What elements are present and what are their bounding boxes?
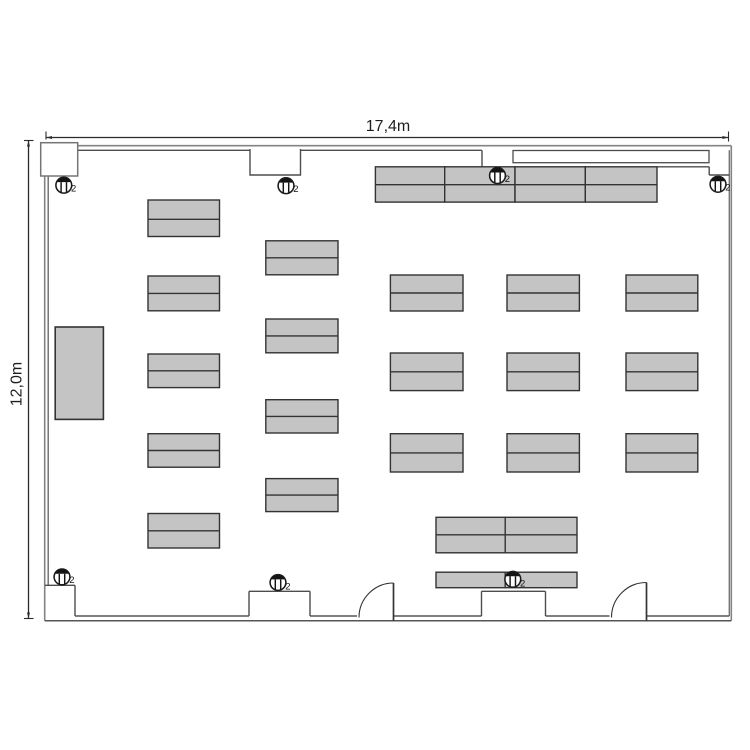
svg-text:17,4m: 17,4m [366, 118, 410, 135]
svg-text:12,0m: 12,0m [9, 362, 26, 406]
svg-text:2: 2 [69, 575, 74, 586]
svg-text:2: 2 [293, 184, 298, 195]
svg-text:2: 2 [520, 578, 525, 589]
svg-text:2: 2 [71, 184, 76, 195]
svg-text:2: 2 [725, 183, 730, 194]
svg-text:2: 2 [505, 174, 510, 185]
svg-text:2: 2 [285, 582, 290, 593]
